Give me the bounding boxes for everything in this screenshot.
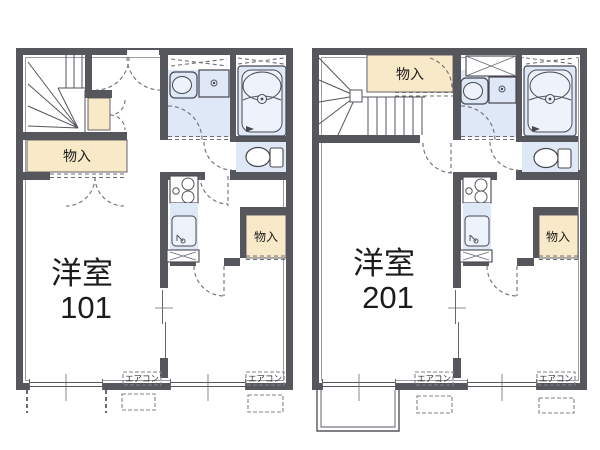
- room-201-label: 洋室 201: [353, 246, 415, 315]
- bathtub-101: [242, 70, 282, 132]
- floor-plan-page: 物入: [0, 0, 600, 450]
- storage-label-room-101: 物入: [254, 230, 278, 244]
- ac-label-201-left: エアコン: [417, 374, 451, 384]
- stair-hall-door-201: [423, 143, 453, 173]
- storage-label-hall-101: 物入: [63, 148, 91, 164]
- bathroom-201: [524, 55, 576, 136]
- room-101-number: 101: [60, 290, 112, 325]
- kitchen-201: [460, 177, 492, 262]
- storage-closet-hall-201: 物入: [367, 55, 453, 96]
- washing-machine-201: [489, 77, 516, 103]
- kitchen-sink-201: [463, 203, 491, 250]
- ac-label-101-right: エアコン: [248, 374, 282, 384]
- storage-label-hall-201: 物入: [396, 66, 424, 82]
- unit-101: 物入: [16, 48, 293, 413]
- ac-outdoor-unit-101-right: [248, 395, 283, 412]
- washer-pan-201: [466, 56, 516, 76]
- toilet-101: [246, 148, 283, 168]
- partition-201: [448, 288, 466, 358]
- floor-plan-drawing: 物入: [0, 0, 600, 450]
- ac-outdoor-unit-101-left: [122, 394, 155, 410]
- toilet-201: [534, 149, 571, 169]
- stove-201: [463, 177, 491, 203]
- room-201-number: 201: [362, 280, 414, 315]
- room-101-type: 洋室: [51, 256, 113, 291]
- ac-outdoor-unit-201-left: [417, 396, 452, 413]
- storage-closet-room-101: 物入: [246, 215, 286, 260]
- partition-101: [155, 288, 173, 358]
- ac-units-101: エアコン エアコン: [122, 372, 284, 412]
- hall-door-101: [200, 176, 228, 206]
- room-201-type: 洋室: [353, 246, 415, 281]
- ac-label-101-left: エアコン: [125, 374, 159, 384]
- bathtub-201: [528, 70, 572, 132]
- toilet-room-201: [490, 142, 578, 172]
- staircase-101: [28, 55, 85, 132]
- kitchen-vent-201: [460, 250, 492, 262]
- washroom-101: [168, 55, 230, 140]
- storage-closet-room-201: 物入: [539, 215, 578, 260]
- unit-201: 物入: [312, 48, 587, 431]
- washbasin-101: [170, 72, 197, 98]
- storage-label-room-201: 物入: [546, 230, 570, 244]
- ac-label-201-right: エアコン: [539, 374, 573, 384]
- kitchen-101: [167, 176, 199, 262]
- washbasin-201: [461, 78, 488, 104]
- ac-units-201: エアコン エアコン: [415, 372, 575, 413]
- washroom-201: [461, 56, 516, 140]
- dining-door-101: [194, 266, 224, 296]
- ac-outdoor-unit-201-right: [539, 398, 574, 413]
- kitchen-vent-101: [167, 250, 199, 262]
- stove-101: [170, 176, 198, 203]
- toilet-door-arc-101: [204, 142, 232, 170]
- shoe-cabinet-101: [88, 98, 125, 130]
- room-101-label: 洋室 101: [51, 256, 113, 325]
- toilet-room-101: [204, 142, 286, 172]
- washing-machine-101: [199, 70, 229, 97]
- dining-door-201: [487, 266, 517, 296]
- kitchen-sink-101: [170, 203, 198, 250]
- entrance-door-arcs-101: [96, 57, 160, 90]
- balcony-201: [317, 390, 399, 431]
- toilet-door-arc-201: [490, 142, 518, 170]
- terrace-bounds-101: [27, 390, 106, 413]
- bathroom-101: [236, 55, 286, 136]
- entrance-door-opening-101: [127, 50, 159, 55]
